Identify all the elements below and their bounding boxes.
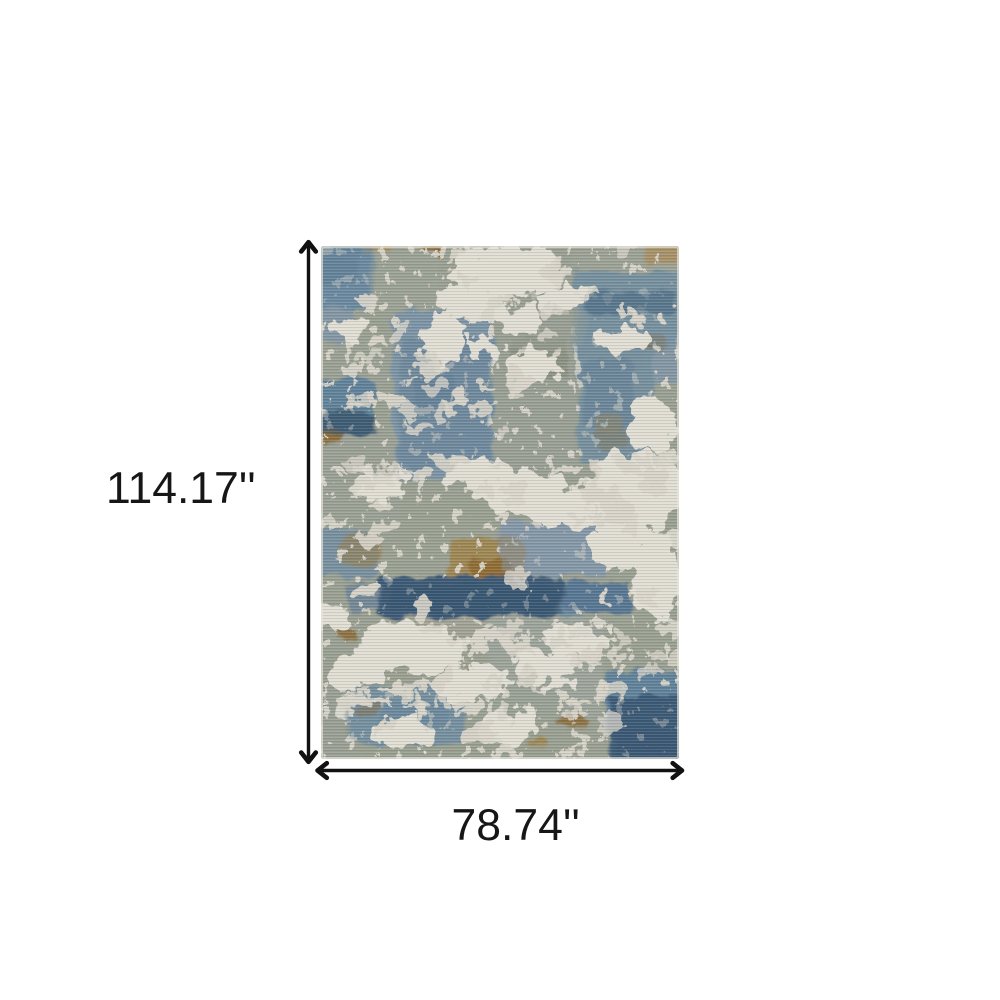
svg-text:78.74'': 78.74'': [452, 801, 580, 850]
svg-text:114.17'': 114.17'': [106, 464, 256, 513]
